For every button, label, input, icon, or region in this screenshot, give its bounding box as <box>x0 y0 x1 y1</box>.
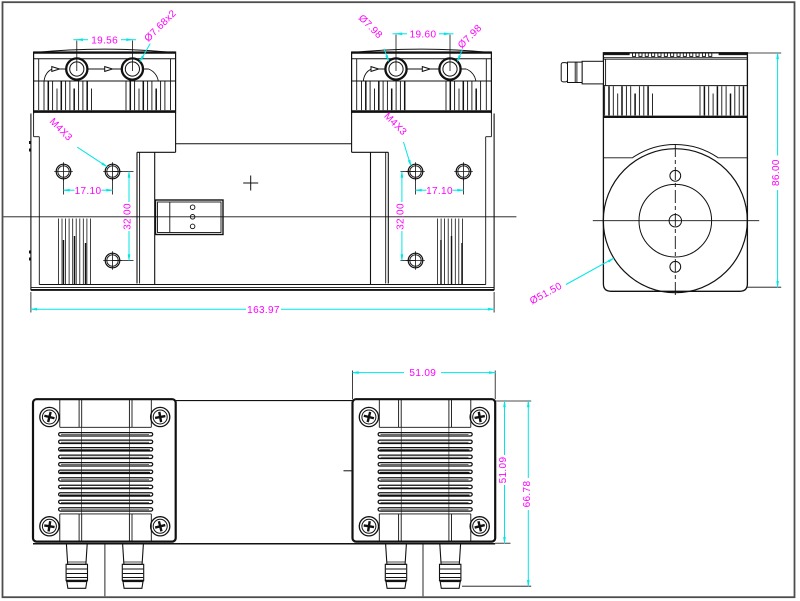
svg-text:Ø7.98: Ø7.98 <box>456 23 484 51</box>
svg-text:19.56: 19.56 <box>91 35 118 46</box>
svg-text:32.00: 32.00 <box>395 203 406 230</box>
svg-text:32.00: 32.00 <box>123 203 134 230</box>
svg-text:86.00: 86.00 <box>771 159 782 186</box>
svg-text:51.09: 51.09 <box>498 457 509 484</box>
svg-text:17.10: 17.10 <box>426 186 453 197</box>
svg-text:163.97: 163.97 <box>247 305 280 316</box>
svg-text:51.09: 51.09 <box>409 368 436 379</box>
svg-text:M4X3: M4X3 <box>47 116 74 143</box>
svg-text:Ø7.98: Ø7.98 <box>356 13 384 41</box>
svg-text:66.78: 66.78 <box>522 481 533 508</box>
svg-text:M4X3: M4X3 <box>381 111 408 138</box>
svg-text:Ø51.50: Ø51.50 <box>528 281 564 307</box>
svg-text:17.10: 17.10 <box>75 186 102 197</box>
svg-text:Ø7.68x2: Ø7.68x2 <box>143 8 179 44</box>
svg-text:19.60: 19.60 <box>410 29 437 40</box>
